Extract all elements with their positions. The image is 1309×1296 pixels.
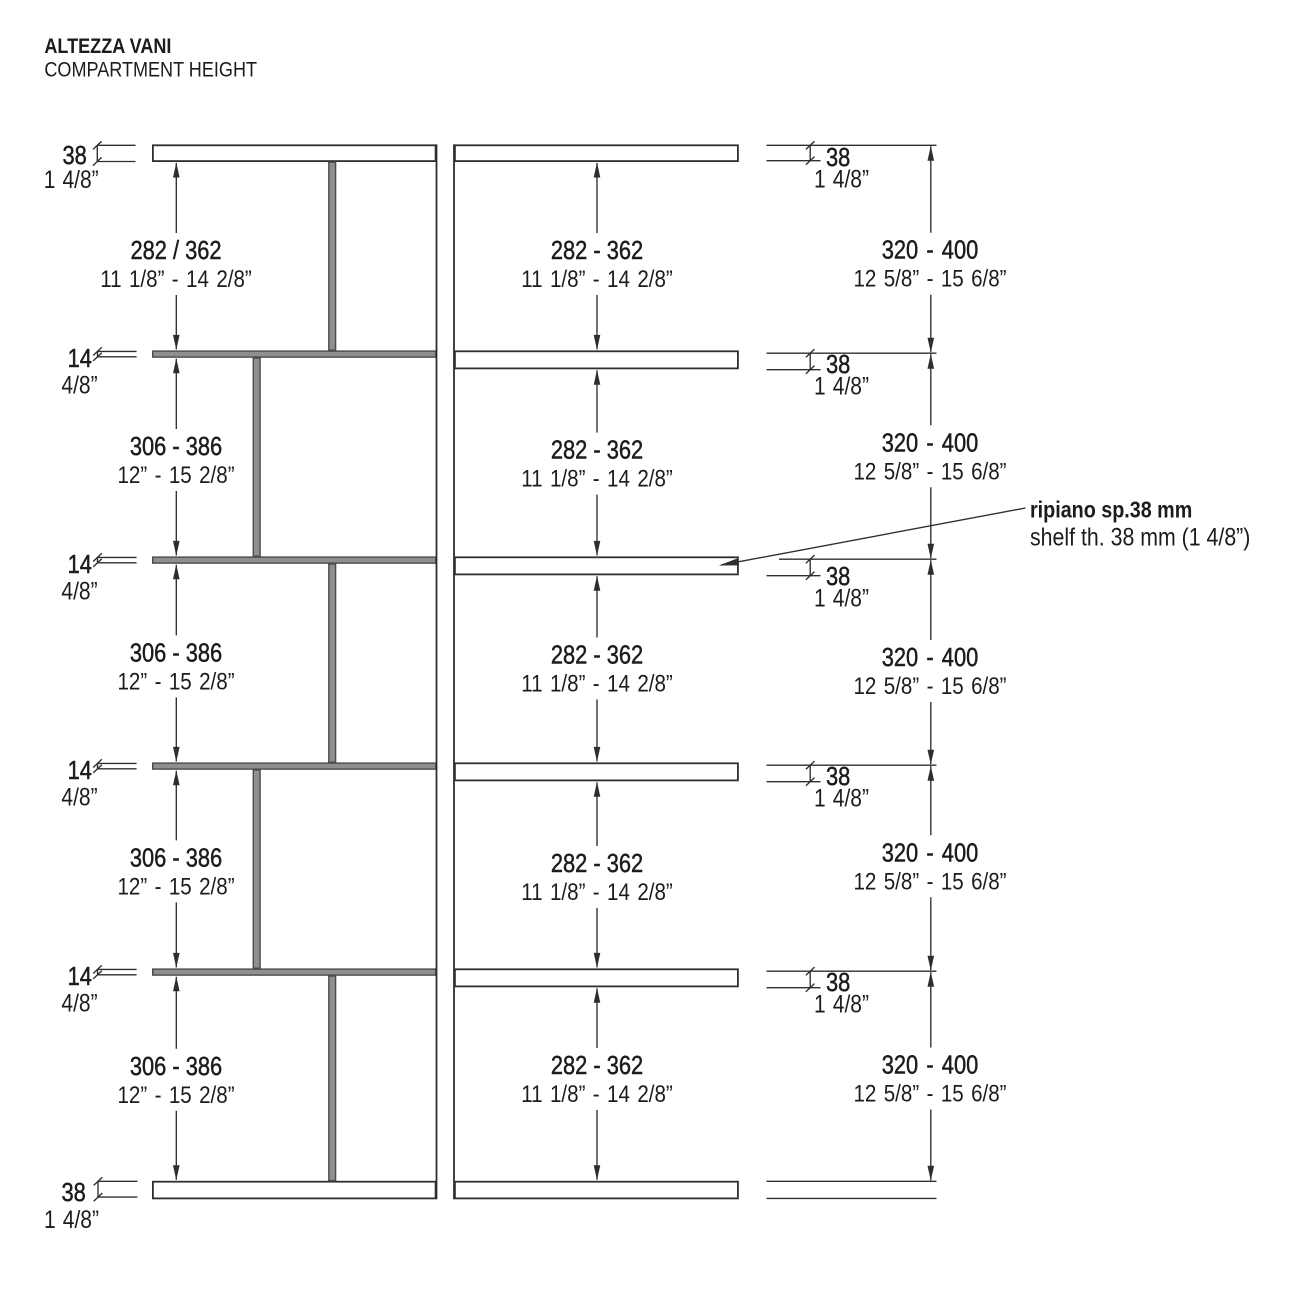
svg-text:12 5/8” - 15 6/8”: 12 5/8” - 15 6/8” [853,265,1006,292]
svg-text:12 5/8” - 15 6/8”: 12 5/8” - 15 6/8” [853,672,1006,699]
svg-text:320 - 400: 320 - 400 [882,643,978,672]
svg-text:14: 14 [68,344,92,373]
svg-text:14: 14 [68,550,92,579]
svg-text:4/8”: 4/8” [61,577,97,605]
svg-text:11 1/8” - 14 2/8”: 11 1/8” - 14 2/8” [521,670,673,697]
svg-text:282 - 362: 282 - 362 [551,849,643,878]
svg-text:306 - 386: 306 - 386 [130,639,222,668]
svg-text:1 4/8”: 1 4/8” [814,165,869,193]
svg-text:282 / 362: 282 / 362 [130,236,221,265]
svg-text:306 - 386: 306 - 386 [130,844,222,873]
svg-text:1 4/8”: 1 4/8” [44,165,99,193]
svg-text:1 4/8”: 1 4/8” [814,584,869,612]
svg-text:11 1/8” - 14 2/8”: 11 1/8” - 14 2/8” [521,465,673,492]
svg-text:282 - 362: 282 - 362 [551,641,643,670]
svg-text:1 4/8”: 1 4/8” [814,784,869,812]
svg-text:12” - 15 2/8”: 12” - 15 2/8” [117,873,234,900]
svg-text:shelf th. 38 mm (1 4/8”): shelf th. 38 mm (1 4/8”) [1030,523,1250,551]
svg-text:14: 14 [68,756,92,785]
svg-text:14: 14 [68,962,92,991]
svg-text:306 - 386: 306 - 386 [130,1052,222,1081]
svg-text:282 - 362: 282 - 362 [551,236,643,265]
svg-text:4/8”: 4/8” [61,783,97,811]
svg-text:COMPARTMENT HEIGHT: COMPARTMENT HEIGHT [44,58,257,82]
svg-text:282 - 362: 282 - 362 [551,1051,643,1080]
svg-text:11 1/8” - 14 2/8”: 11 1/8” - 14 2/8” [100,265,252,292]
svg-text:12 5/8” - 15 6/8”: 12 5/8” - 15 6/8” [853,1080,1006,1107]
svg-text:ripiano sp.38 mm: ripiano sp.38 mm [1030,496,1192,523]
svg-text:4/8”: 4/8” [61,989,97,1017]
svg-text:4/8”: 4/8” [61,371,97,399]
svg-text:282 - 362: 282 - 362 [551,436,643,465]
svg-text:11 1/8” - 14 2/8”: 11 1/8” - 14 2/8” [521,878,673,905]
svg-text:1 4/8”: 1 4/8” [814,990,869,1018]
svg-text:1 4/8”: 1 4/8” [814,372,869,400]
svg-text:12” - 15 2/8”: 12” - 15 2/8” [117,1081,234,1108]
svg-text:11 1/8” - 14 2/8”: 11 1/8” - 14 2/8” [521,1080,673,1107]
svg-text:320 - 400: 320 - 400 [882,839,978,868]
svg-text:320 - 400: 320 - 400 [882,236,978,265]
svg-text:12 5/8” - 15 6/8”: 12 5/8” - 15 6/8” [853,868,1006,895]
svg-text:12” - 15 2/8”: 12” - 15 2/8” [117,461,234,488]
svg-text:ALTEZZA VANI: ALTEZZA VANI [44,35,171,59]
svg-text:306 - 386: 306 - 386 [130,432,222,461]
svg-text:12 5/8” - 15 6/8”: 12 5/8” - 15 6/8” [853,458,1006,485]
svg-text:320 - 400: 320 - 400 [882,1051,978,1080]
svg-text:1 4/8”: 1 4/8” [44,1205,99,1233]
svg-text:320 - 400: 320 - 400 [882,429,978,458]
svg-text:12” - 15 2/8”: 12” - 15 2/8” [117,668,234,695]
svg-text:11 1/8” - 14 2/8”: 11 1/8” - 14 2/8” [521,265,673,292]
svg-text:38: 38 [62,1178,86,1207]
